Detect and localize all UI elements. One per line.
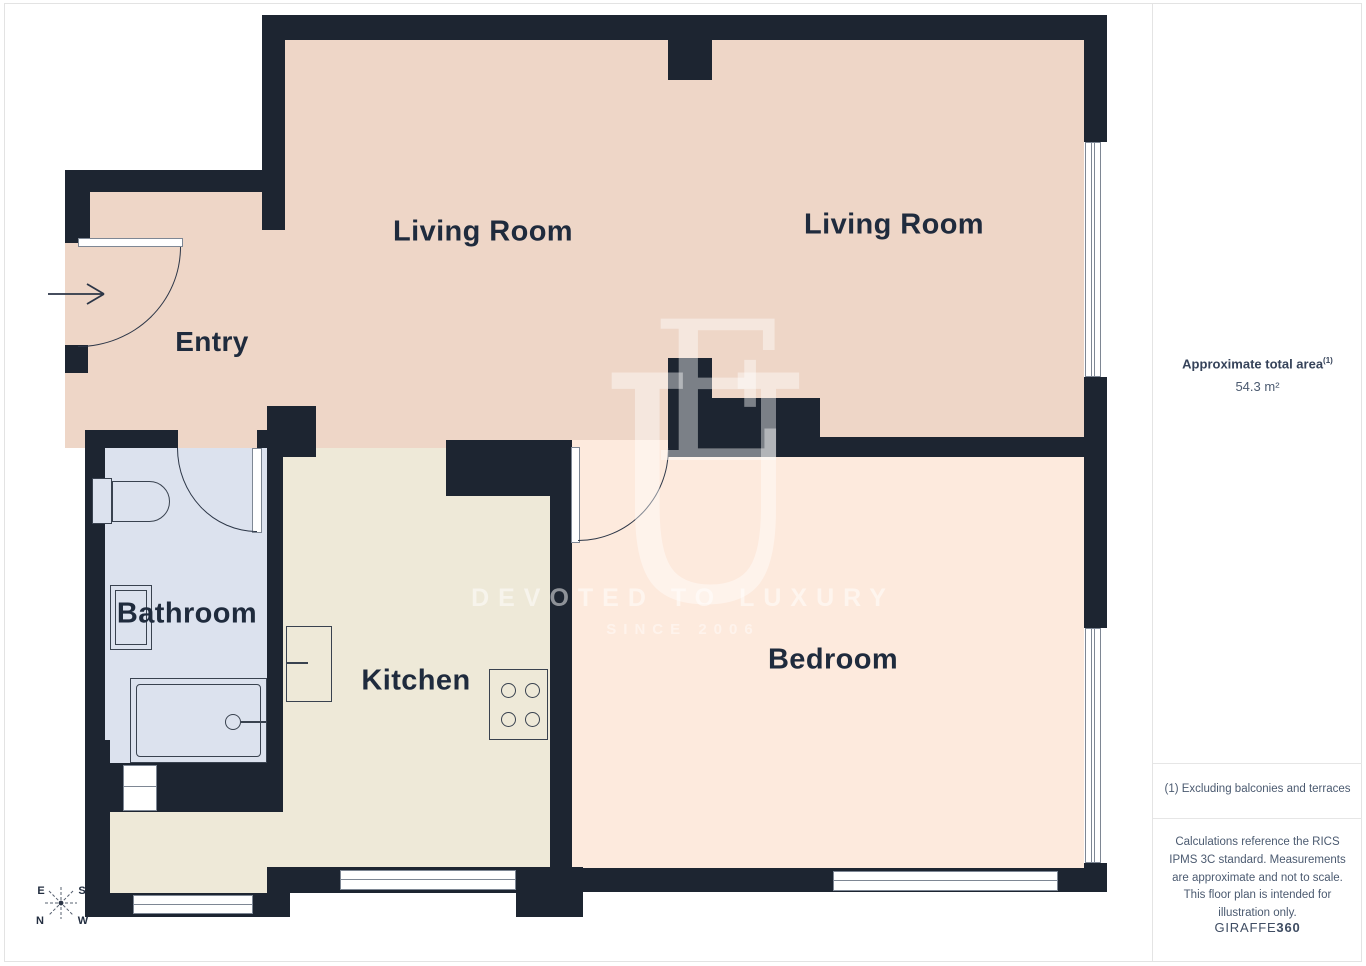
- bathroom-label: Bathroom: [117, 598, 257, 631]
- living-room-label: Living Room: [393, 216, 573, 249]
- wall: [516, 867, 583, 917]
- kitchen-appliance-handle: [286, 662, 308, 664]
- window: [340, 870, 516, 890]
- giraffe360-logo-name: GIRAFFE: [1214, 920, 1276, 935]
- wall: [65, 170, 267, 192]
- bathtub-drain: [225, 714, 241, 730]
- info-sidebar: Approximate total area(1) 54.3 m² (1) Ex…: [1152, 4, 1362, 961]
- stove-burner: [501, 712, 516, 727]
- wall: [712, 398, 820, 457]
- compass-south-label: S: [78, 885, 85, 897]
- compass-icon: E S N W: [28, 876, 94, 930]
- stove-burner: [501, 683, 516, 698]
- living-room-label: Living Room: [804, 209, 984, 242]
- wall-column: [668, 358, 712, 457]
- stove-burner: [525, 712, 540, 727]
- floorplan-page: Living Room Living Room Entry Bathroom K…: [0, 0, 1366, 966]
- window: [1085, 142, 1101, 377]
- wall: [262, 15, 285, 230]
- divider: [1153, 763, 1362, 764]
- wall: [267, 867, 290, 917]
- wall: [257, 430, 267, 448]
- wall: [446, 440, 572, 496]
- giraffe360-logo-suffix: 360: [1276, 920, 1300, 935]
- disclaimer-text: Calculations reference the RICS IPMS 3C …: [1167, 834, 1348, 923]
- compass-north-label: N: [36, 915, 44, 927]
- bathtub-drain-line: [241, 721, 267, 723]
- divider: [1153, 818, 1362, 819]
- entry-door-leaf: [78, 238, 183, 247]
- window: [123, 765, 157, 811]
- wall: [1084, 377, 1107, 628]
- wall: [1084, 863, 1107, 892]
- wall: [550, 496, 572, 870]
- wall: [65, 192, 90, 243]
- wall: [267, 448, 283, 812]
- window: [133, 895, 253, 914]
- area-footnote: (1) Excluding balconies and terraces: [1153, 783, 1362, 795]
- window: [1085, 628, 1101, 863]
- entry-arrow-icon: [46, 281, 110, 307]
- stove: [489, 669, 548, 740]
- stove-burner: [525, 683, 540, 698]
- wall: [65, 345, 88, 373]
- total-area-value: 54.3 m²: [1153, 379, 1362, 394]
- toilet-tank: [92, 478, 112, 524]
- entry-label: Entry: [175, 326, 249, 358]
- wall: [820, 437, 1084, 457]
- wall: [1084, 40, 1107, 142]
- wall: [105, 430, 178, 448]
- kitchen-floor-extension: [105, 812, 290, 893]
- toilet-bowl: [112, 481, 170, 522]
- footnote-marker: (1): [1323, 356, 1333, 365]
- window: [833, 871, 1058, 891]
- kitchen-label: Kitchen: [361, 665, 470, 698]
- total-area-title: Approximate total area(1): [1153, 356, 1362, 371]
- total-area-label: Approximate total area: [1182, 356, 1323, 371]
- bedroom-label: Bedroom: [768, 644, 898, 677]
- giraffe360-logo: GIRAFFE360: [1153, 920, 1362, 935]
- total-area-block: Approximate total area(1) 54.3 m²: [1153, 356, 1362, 394]
- compass-east-label: E: [37, 885, 44, 897]
- wall-column: [668, 40, 712, 80]
- compass-west-label: W: [78, 915, 89, 927]
- wall: [262, 15, 1107, 40]
- kitchen-appliance: [286, 626, 332, 702]
